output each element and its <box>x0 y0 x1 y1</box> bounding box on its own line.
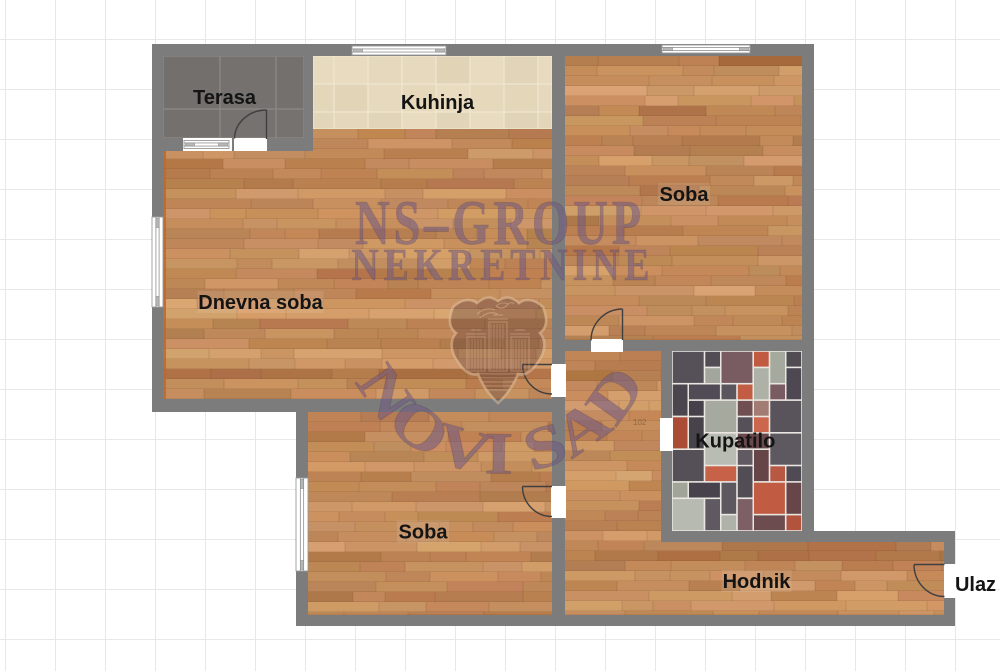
svg-text:Hodnik: Hodnik <box>723 571 792 593</box>
svg-text:Dnevna soba: Dnevna soba <box>198 292 323 314</box>
svg-text:Ulaz: Ulaz <box>955 574 996 596</box>
svg-text:Soba: Soba <box>660 184 710 206</box>
svg-text:Soba: Soba <box>399 522 449 544</box>
svg-text:Kupatilo: Kupatilo <box>695 431 775 453</box>
svg-text:Kuhinja: Kuhinja <box>401 92 475 114</box>
svg-text:Terasa: Terasa <box>193 87 257 109</box>
svg-text:NEKRETNINE: NEKRETNINE <box>352 240 655 290</box>
